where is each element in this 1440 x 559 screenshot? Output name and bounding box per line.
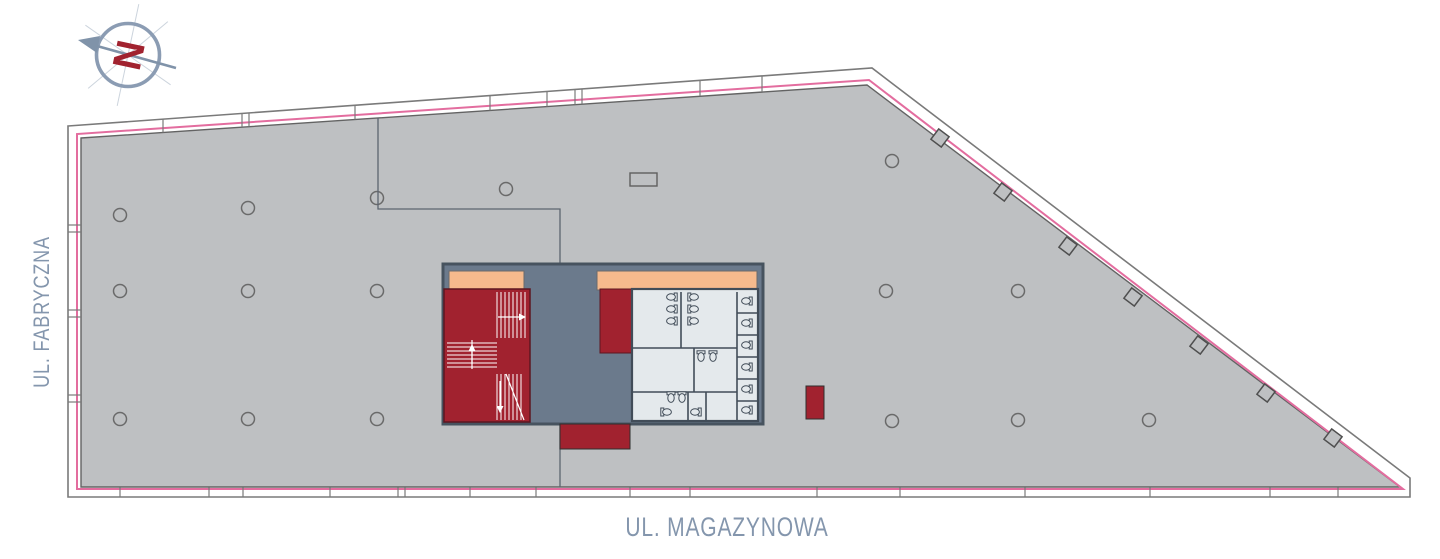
- elevator-bank: [449, 271, 524, 290]
- fixture-bowl: [690, 306, 699, 312]
- toilet-fixture-icon: [667, 293, 678, 301]
- fixture-bowl: [742, 298, 751, 304]
- fixture-bowl: [742, 342, 751, 348]
- toilet-fixture-icon: [667, 392, 675, 403]
- toilet-fixture-icon: [742, 385, 753, 393]
- toilet-fixture-icon: [742, 341, 753, 349]
- fixture-bowl: [690, 294, 699, 300]
- fixture-bowl: [690, 318, 699, 324]
- fixture-bowl: [710, 353, 716, 362]
- compass-north-letter: N: [103, 36, 152, 73]
- toilet-fixture-icon: [688, 293, 699, 301]
- unit-red-rect: [560, 424, 630, 449]
- toilet-fixture-icon: [742, 319, 753, 327]
- toilet-fixture-icon: [742, 406, 753, 414]
- toilet-fixture-icon: [697, 351, 705, 362]
- fixture-bowl: [742, 320, 751, 326]
- toilet-fixture-icon: [678, 392, 686, 403]
- fixture-bowl: [668, 394, 674, 403]
- fixture-bowl: [742, 364, 751, 370]
- core-red-shaft: [600, 289, 632, 353]
- toilet-fixture-icon: [667, 317, 678, 325]
- fixture-bowl: [698, 353, 704, 362]
- toilet-fixture-icon: [691, 408, 702, 416]
- fixture-bowl: [742, 407, 751, 413]
- street-label-magazynowa: UL. MAGAZYNOWA: [571, 510, 883, 544]
- fixture-bowl: [691, 409, 700, 415]
- fixture-bowl: [667, 318, 676, 324]
- toilet-fixture-icon: [709, 351, 717, 362]
- compass-rose: N: [0, 0, 250, 115]
- floor-plan-page: N UL. FABRYCZNA UL. MAGAZYNOWA: [0, 0, 1440, 559]
- fixture-bowl: [679, 394, 685, 403]
- fixture-bowl: [667, 306, 676, 312]
- toilet-fixture-icon: [688, 317, 699, 325]
- fixture-bowl: [663, 409, 672, 415]
- fixture-bowl: [742, 386, 751, 392]
- toilet-fixture-icon: [688, 305, 699, 313]
- unit-red-rect: [806, 386, 824, 419]
- toilet-fixture-icon: [742, 363, 753, 371]
- toilet-fixture-icon: [667, 305, 678, 313]
- elevator-bank: [597, 271, 757, 290]
- compass-needle-arrowhead-icon: [78, 36, 100, 53]
- toilet-fixture-icon: [742, 297, 753, 305]
- street-label-fabryczna: UL. FABRYCZNA: [27, 214, 57, 411]
- toilet-fixture-icon: [661, 408, 672, 416]
- fixture-bowl: [667, 294, 676, 300]
